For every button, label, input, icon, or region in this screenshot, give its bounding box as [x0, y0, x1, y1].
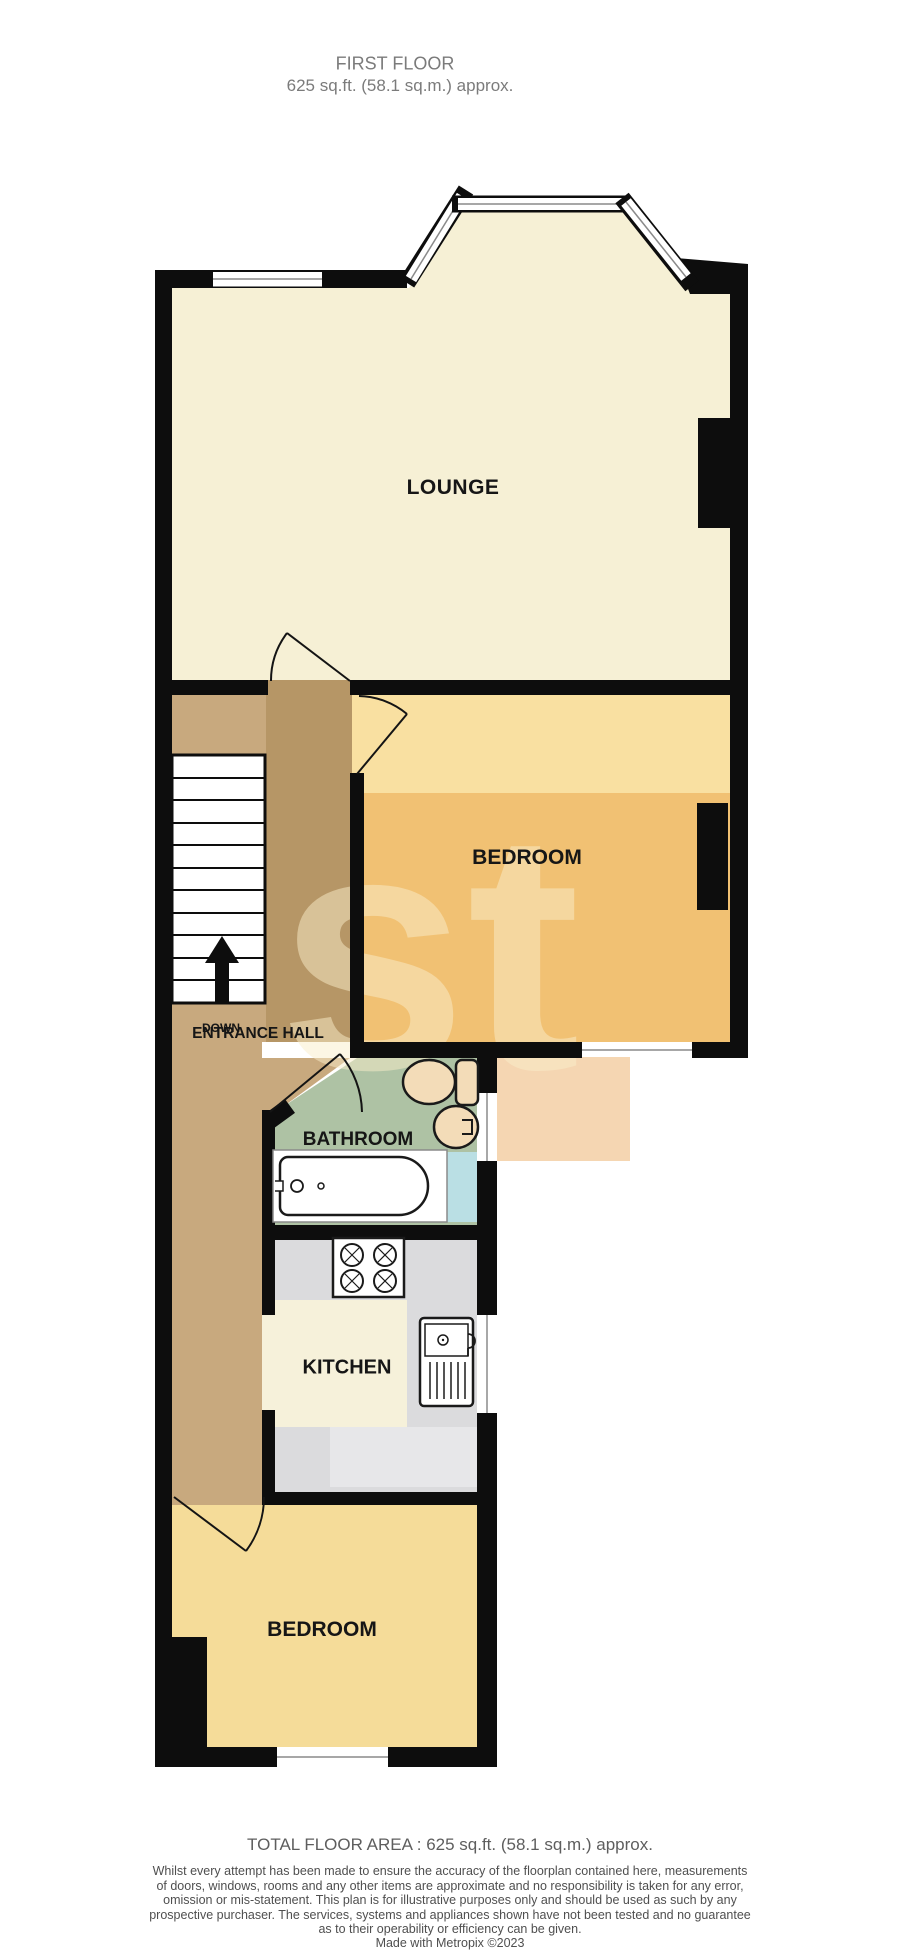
wall-kitchen-bottom [262, 1492, 497, 1505]
chimney-breast-bedroom2 [172, 1637, 207, 1747]
wall-right-outer [730, 272, 748, 1058]
wall-lounge-bottom-left [155, 680, 268, 695]
total-floor-area: TOTAL FLOOR AREA : 625 sq.ft. (58.1 sq.m… [247, 1835, 653, 1855]
room-label-bedroom-middle: BEDROOM [472, 846, 582, 870]
room-label-bedroom-bottom: BEDROOM [267, 1618, 377, 1642]
kitchen-floor-light [330, 1427, 477, 1487]
room-label-bathroom: BATHROOM [303, 1129, 413, 1151]
metropix-credit: Made with Metropix ©2023 [376, 1936, 525, 1950]
floorplan-svg: st [0, 0, 900, 1959]
staircase [172, 755, 265, 1003]
chimney-breast-bedroom1 [697, 803, 728, 910]
toilet-bowl-icon [403, 1060, 455, 1104]
wall-lounge-bottom-right [350, 680, 748, 695]
disclaimer-line-5: as to their operability or efficiency ca… [318, 1922, 581, 1936]
floorplan-page: st [0, 0, 900, 1959]
kitchen-doorgap [262, 1315, 275, 1410]
hall-floor-corridor [172, 1042, 262, 1505]
toilet-cistern-icon [456, 1060, 478, 1105]
wall-kitchen-left-upper [262, 1240, 275, 1315]
disclaimer-line-1: Whilst every attempt has been made to en… [153, 1864, 748, 1878]
wall-right-inner-b [477, 1161, 497, 1315]
disclaimer-line-2: of doors, windows, rooms and any other i… [156, 1879, 743, 1893]
wall-right-inner-a [477, 1042, 497, 1093]
disclaimer-line-4: prospective purchaser. The services, sys… [149, 1908, 751, 1922]
stairs-arrow-shaft [215, 958, 229, 1002]
room-label-entrance-hall: ENTRANCE HALL [192, 1025, 324, 1043]
bathroom-blue-area [447, 1152, 477, 1222]
room-label-kitchen: KITCHEN [303, 1357, 392, 1380]
room-label-lounge: LOUNGE [407, 476, 500, 500]
wall-left-outer [155, 270, 172, 1767]
wall-bedroom2-bottom-left [155, 1747, 277, 1767]
sink-drain-dot [442, 1339, 444, 1341]
page-title: FIRST FLOOR [336, 54, 455, 75]
floor-area-subtitle: 625 sq.ft. (58.1 sq.m.) approx. [287, 76, 514, 96]
sink-basin-icon [425, 1324, 468, 1356]
wall-kitchen-left-lower [262, 1410, 275, 1492]
wall-hall-bedroom-divider [350, 773, 364, 1042]
wall-bedroom2-bottom-right [388, 1747, 497, 1767]
wall-bathroom-top-right [692, 1042, 748, 1058]
bathtub-spout-icon [275, 1181, 283, 1191]
wall-right-inner-c [477, 1413, 497, 1767]
wall-bathroom-top-left [350, 1042, 582, 1058]
disclaimer-line-3: omission or mis-statement. This plan is … [163, 1893, 737, 1907]
chimney-breast-lounge [698, 418, 730, 528]
